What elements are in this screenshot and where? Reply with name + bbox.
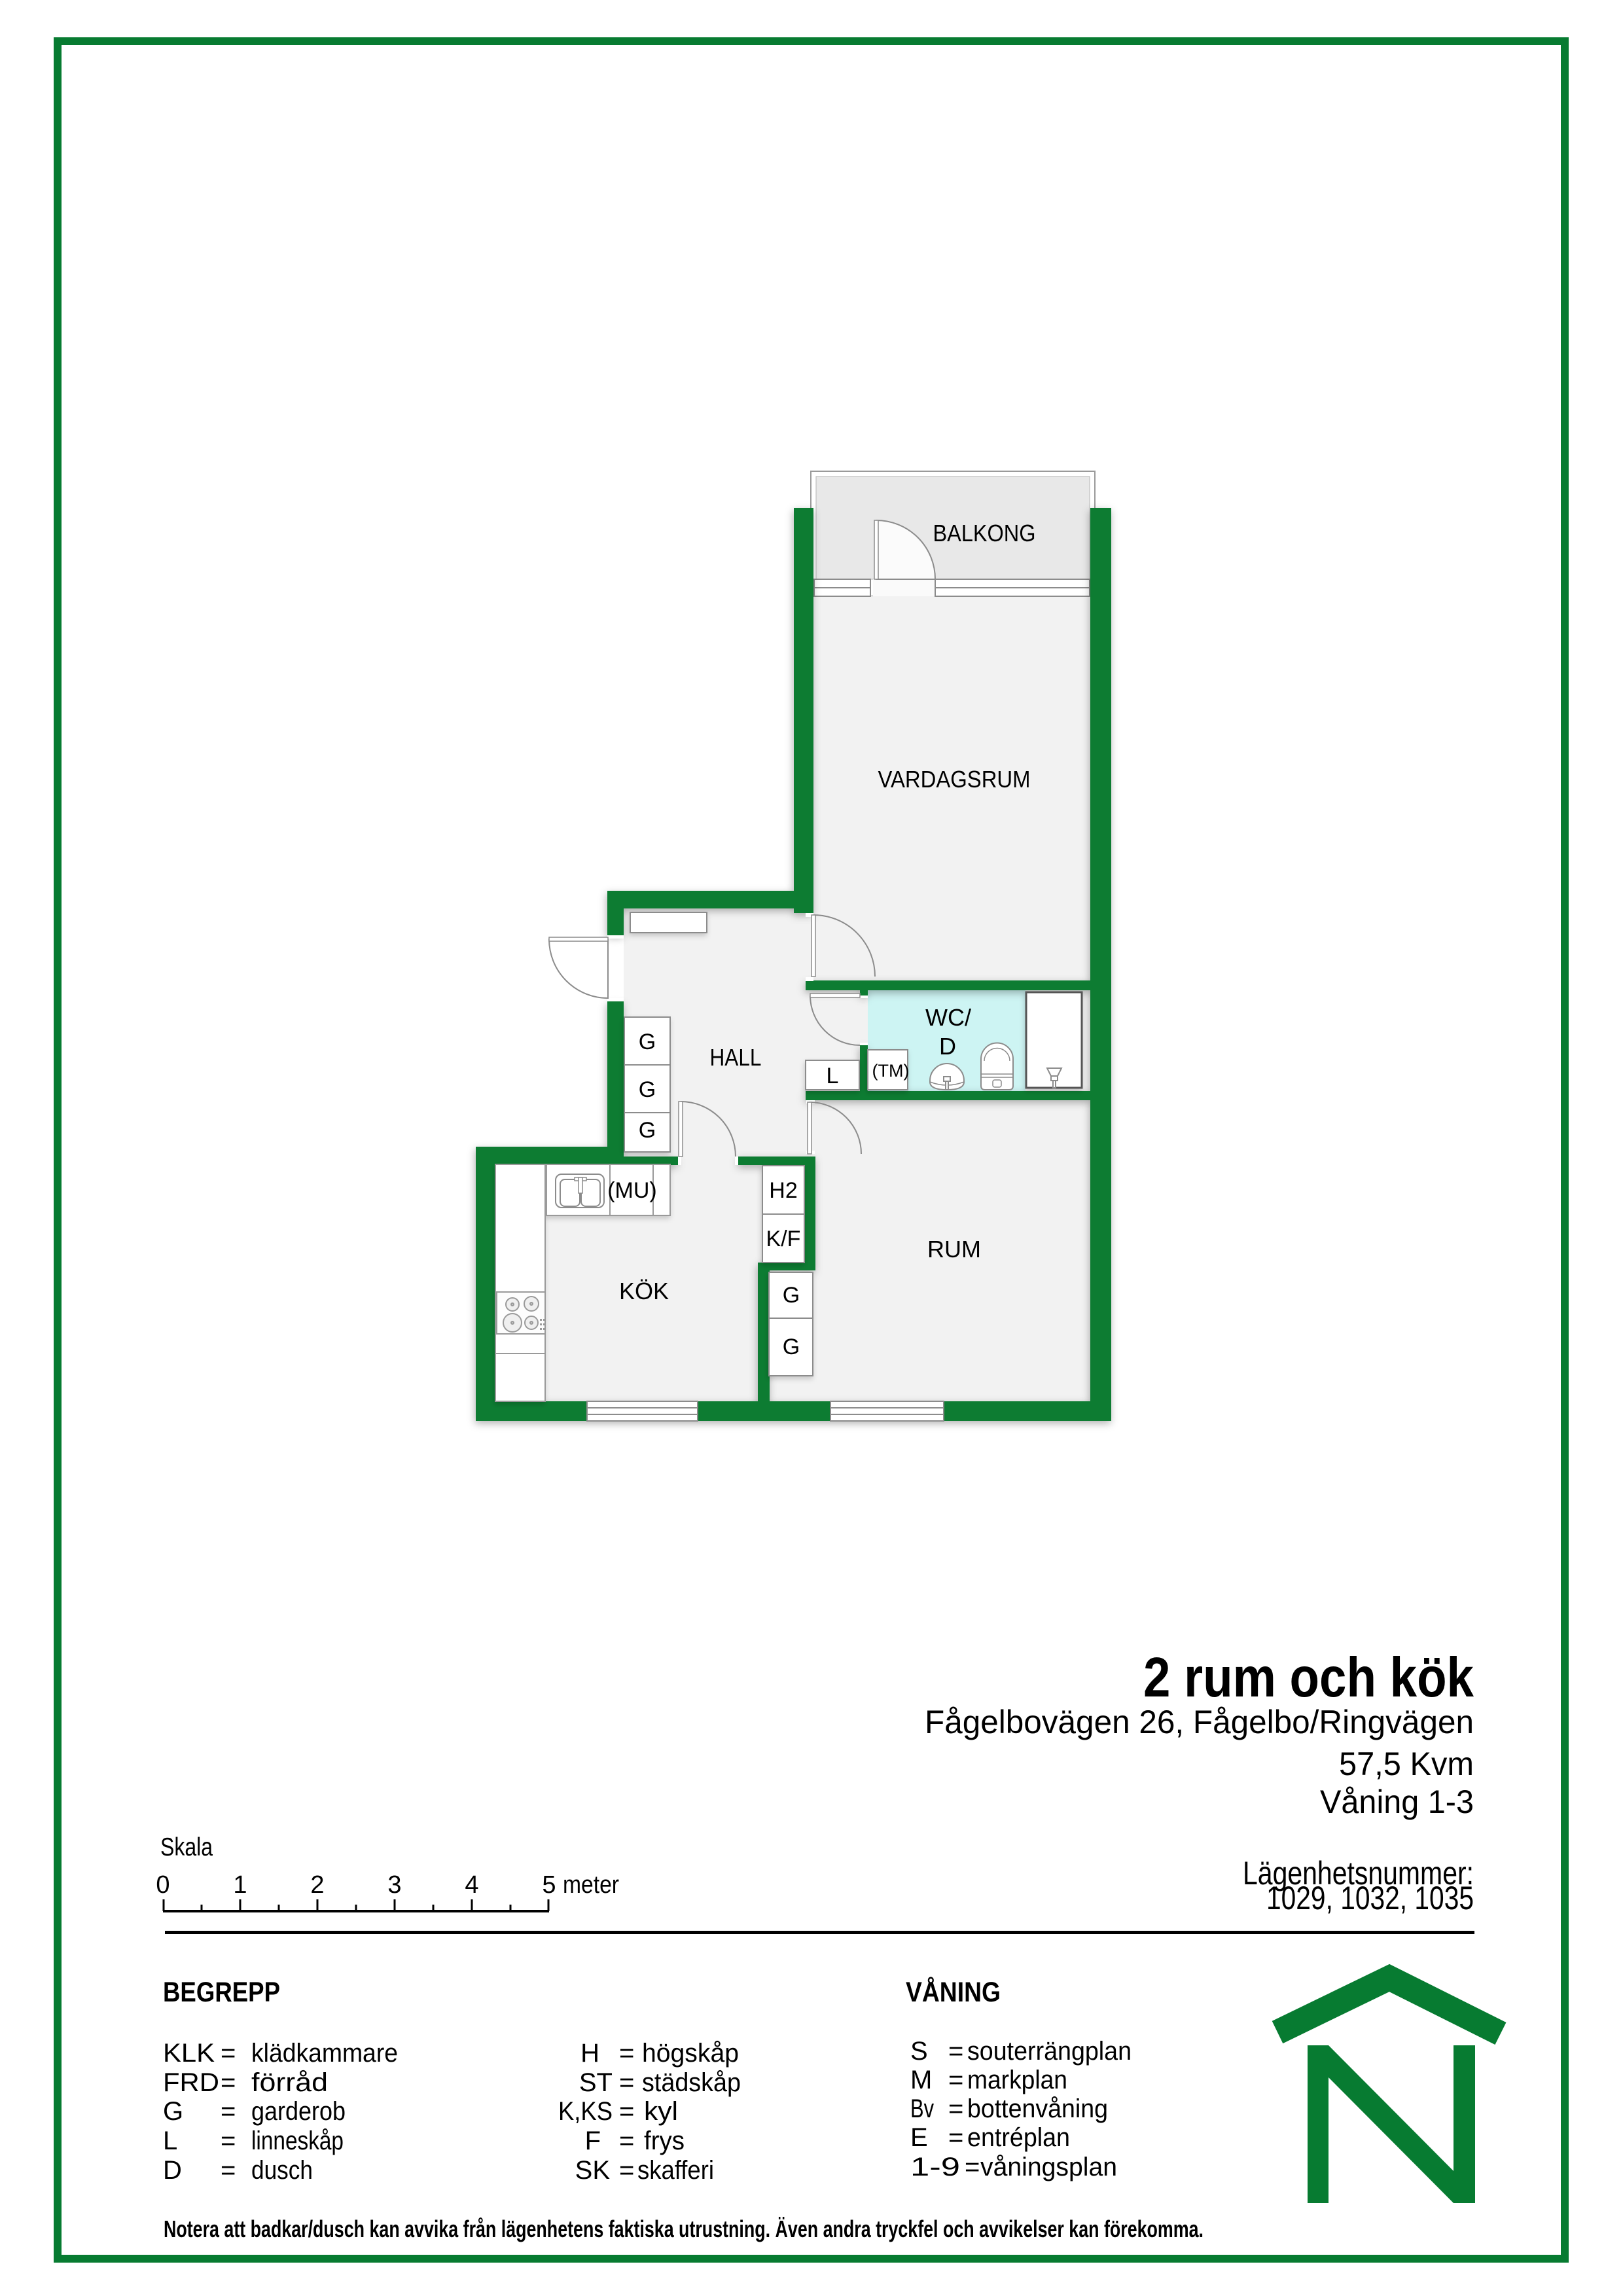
svg-text:D: D: [939, 1033, 956, 1060]
svg-text:4: 4: [465, 1871, 478, 1899]
svg-text:Bv: Bv: [910, 2094, 934, 2123]
svg-text:städskåp: städskåp: [642, 2068, 741, 2097]
svg-text:VARDAGSRUM: VARDAGSRUM: [878, 766, 1031, 793]
svg-text:=: =: [221, 2156, 236, 2185]
svg-text:=: =: [619, 2039, 634, 2068]
svg-text:3: 3: [387, 1871, 401, 1899]
svg-text:KÖK: KÖK: [619, 1278, 669, 1304]
svg-text:våningsplan: våningsplan: [980, 2153, 1117, 2181]
svg-text:frys: frys: [644, 2126, 685, 2155]
svg-text:Fågelbovägen 26, Fågelbo/Ringv: Fågelbovägen 26, Fågelbo/Ringvägen: [925, 1704, 1474, 1740]
svg-text:SK: SK: [575, 2156, 611, 2185]
svg-text:=: =: [221, 2097, 236, 2126]
svg-text:1-9: 1-9: [910, 2153, 960, 2181]
svg-text:K,KS: K,KS: [558, 2097, 613, 2126]
svg-text:G: G: [639, 1030, 656, 1054]
svg-text:=: =: [948, 2123, 963, 2152]
svg-text:L: L: [827, 1064, 839, 1088]
svg-text:1: 1: [233, 1871, 247, 1899]
svg-text:markplan: markplan: [967, 2066, 1067, 2094]
svg-text:S: S: [910, 2037, 928, 2066]
svg-text:=: =: [221, 2039, 236, 2068]
svg-text:dusch: dusch: [251, 2156, 313, 2185]
svg-text:linneskåp: linneskåp: [251, 2126, 344, 2155]
svg-text:Skala: Skala: [160, 1833, 213, 1861]
svg-text:klädkammare: klädkammare: [251, 2039, 398, 2068]
svg-text:=: =: [619, 2068, 634, 2097]
svg-text:E: E: [910, 2123, 928, 2152]
svg-text:2: 2: [310, 1871, 324, 1899]
svg-text:=: =: [965, 2153, 980, 2181]
svg-text:=: =: [221, 2068, 236, 2097]
svg-text:2 rum och kök: 2 rum och kök: [1143, 1647, 1474, 1709]
svg-text:=: =: [221, 2126, 236, 2155]
svg-text:förråd: förråd: [251, 2068, 328, 2097]
svg-text:BALKONG: BALKONG: [933, 520, 1036, 547]
svg-text:=: =: [948, 2066, 963, 2094]
svg-text:=: =: [619, 2097, 634, 2126]
svg-text:G: G: [163, 2097, 183, 2126]
svg-text:M: M: [910, 2066, 932, 2094]
svg-text:bottenvåning: bottenvåning: [967, 2094, 1108, 2123]
svg-text:garderob: garderob: [251, 2097, 346, 2126]
svg-text:kyl: kyl: [644, 2097, 678, 2126]
svg-text:=: =: [619, 2126, 634, 2155]
svg-text:57,5 Kvm: 57,5 Kvm: [1339, 1746, 1474, 1782]
svg-text:(TM): (TM): [872, 1061, 910, 1081]
svg-text:Notera att badkar/dusch kan av: Notera att badkar/dusch kan avvika från …: [164, 2215, 1204, 2242]
svg-text:=: =: [948, 2094, 963, 2123]
svg-text:G: G: [639, 1118, 656, 1143]
svg-text:entréplan: entréplan: [967, 2123, 1070, 2152]
svg-text:skafferi: skafferi: [637, 2156, 714, 2185]
svg-text:=: =: [619, 2156, 634, 2185]
svg-text:L: L: [163, 2126, 177, 2155]
svg-text:G: G: [783, 1283, 800, 1308]
svg-text:Våning 1-3: Våning 1-3: [1320, 1784, 1474, 1820]
svg-text:1029, 1032, 1035: 1029, 1032, 1035: [1266, 1880, 1474, 1916]
svg-text:5: 5: [542, 1871, 556, 1899]
svg-text:FRD: FRD: [163, 2068, 219, 2097]
svg-text:H2: H2: [769, 1178, 797, 1203]
svg-text:RUM: RUM: [927, 1236, 981, 1263]
svg-text:0: 0: [156, 1871, 169, 1899]
svg-text:F: F: [585, 2126, 601, 2155]
svg-text:KLK: KLK: [163, 2039, 215, 2068]
svg-text:BEGREPP: BEGREPP: [163, 1977, 280, 2008]
svg-text:WC/: WC/: [925, 1004, 971, 1031]
svg-text:D: D: [163, 2156, 182, 2185]
svg-text:meter: meter: [563, 1871, 619, 1899]
svg-text:K/F: K/F: [766, 1227, 801, 1251]
svg-text:G: G: [639, 1077, 656, 1102]
svg-text:HALL: HALL: [710, 1044, 762, 1071]
svg-text:souterrängplan: souterrängplan: [967, 2037, 1132, 2066]
svg-text:ST: ST: [579, 2068, 613, 2097]
svg-text:G: G: [783, 1335, 800, 1359]
svg-text:VÅNING: VÅNING: [906, 1977, 1001, 2008]
svg-text:=: =: [948, 2037, 963, 2066]
svg-text:(MU): (MU): [607, 1178, 657, 1203]
svg-text:H: H: [580, 2039, 599, 2068]
svg-text:högskåp: högskåp: [642, 2039, 739, 2068]
